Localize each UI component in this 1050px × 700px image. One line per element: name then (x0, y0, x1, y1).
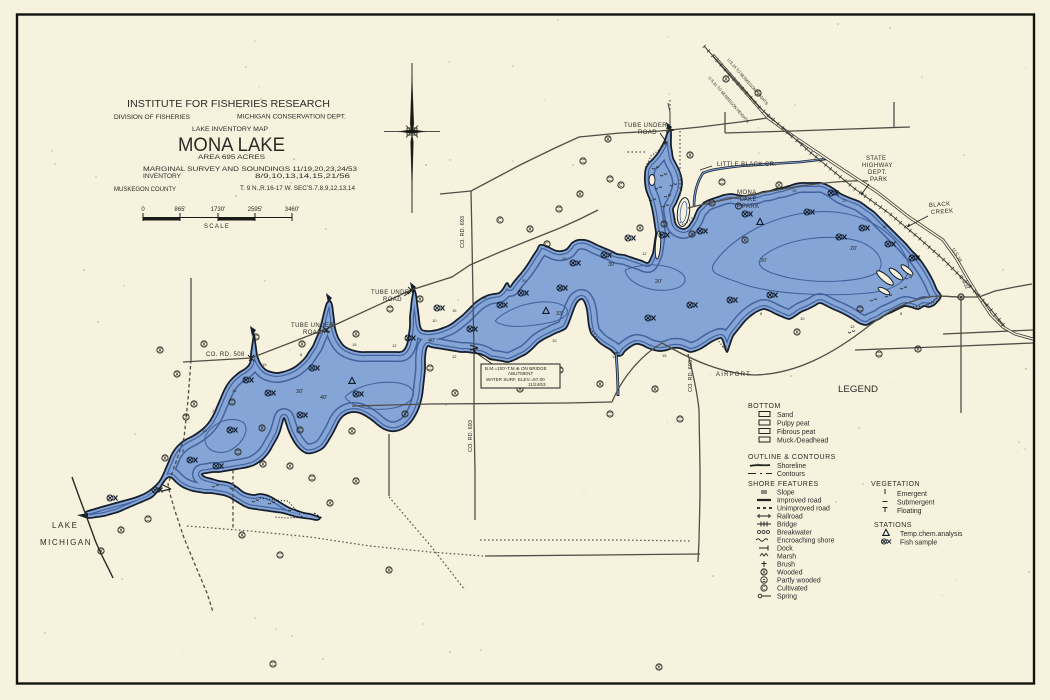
svg-text:33': 33' (556, 311, 563, 317)
svg-text:2595′: 2595′ (248, 207, 263, 213)
svg-text:Muck ∕Deadhead: Muck ∕Deadhead (777, 438, 828, 445)
svg-text:10: 10 (552, 338, 557, 343)
svg-text:AREA 695 ACRES: AREA 695 ACRES (198, 154, 266, 161)
svg-text:BOTTOM: BOTTOM (748, 403, 781, 410)
svg-text:Wooded: Wooded (777, 570, 803, 577)
svg-text:12: 12 (850, 324, 855, 329)
svg-text:HIGHWAY: HIGHWAY (862, 163, 893, 169)
svg-text:OUTLINE & CONTOURS: OUTLINE & CONTOURS (748, 454, 836, 461)
svg-text:40': 40' (320, 395, 327, 401)
svg-text:ROAD: ROAD (638, 130, 657, 136)
svg-text:CO. RD. 693: CO. RD. 693 (688, 360, 694, 392)
svg-text:12: 12 (642, 251, 647, 256)
svg-text:15: 15 (662, 353, 667, 358)
svg-text:Sand: Sand (777, 412, 793, 419)
svg-text:MICHIGAN CONSERVATION DEPT.: MICHIGAN CONSERVATION DEPT. (237, 114, 346, 121)
svg-text:Breakwater: Breakwater (777, 530, 813, 537)
svg-text:20': 20' (655, 279, 662, 285)
svg-text:Floating: Floating (897, 508, 922, 515)
svg-text:Temp.chem.analysis: Temp.chem.analysis (900, 531, 963, 538)
svg-text:LEGEND: LEGEND (838, 384, 878, 395)
svg-text:STATE: STATE (866, 156, 886, 162)
svg-text:Emergent: Emergent (897, 491, 927, 498)
svg-text:SHORE FEATURES: SHORE FEATURES (748, 481, 819, 488)
svg-text:1730′: 1730′ (211, 207, 226, 213)
svg-text:PARK: PARK (870, 177, 888, 183)
svg-text:10: 10 (202, 428, 207, 433)
svg-text:MONA LAKE: MONA LAKE (178, 135, 285, 156)
svg-text:TUBE UNDER: TUBE UNDER (291, 323, 334, 329)
svg-text:TUBE UNDER: TUBE UNDER (624, 123, 667, 129)
svg-text:VEGETATION: VEGETATION (871, 481, 920, 488)
svg-text:DIVISION OF FISHERIES: DIVISION OF FISHERIES (114, 114, 190, 121)
svg-text:10: 10 (232, 388, 237, 393)
svg-text:Shoreline: Shoreline (777, 463, 806, 470)
svg-text:STATIONS: STATIONS (874, 522, 912, 529)
svg-text:Brush: Brush (777, 562, 795, 569)
svg-text:MONA: MONA (737, 190, 757, 196)
svg-text:Spring: Spring (777, 594, 797, 601)
svg-text:LAKE: LAKE (52, 521, 78, 530)
svg-text:P: P (737, 204, 741, 210)
svg-text:MICHIGAN: MICHIGAN (40, 538, 92, 547)
svg-text:CO. RD. 693: CO. RD. 693 (460, 216, 466, 248)
svg-text:12: 12 (212, 408, 217, 413)
svg-text:11/24/53: 11/24/53 (528, 382, 546, 387)
svg-text:Improved road: Improved road (777, 498, 822, 505)
svg-text:30': 30' (608, 262, 615, 268)
svg-text:MARGINAL SURVEY AND SOUNDINGS: MARGINAL SURVEY AND SOUNDINGS 11/19,20,2… (143, 166, 358, 173)
svg-text:Unimproved road: Unimproved road (777, 506, 830, 513)
svg-text:ROAD: ROAD (383, 297, 402, 303)
svg-text:LAKE: LAKE (740, 197, 757, 203)
svg-text:10: 10 (432, 318, 437, 323)
svg-text:LITTLE BLACK CR.: LITTLE BLACK CR. (717, 162, 776, 168)
svg-text:SCALE: SCALE (204, 224, 230, 230)
svg-text:ABUTMENT: ABUTMENT (508, 371, 533, 376)
svg-text:Dock: Dock (777, 546, 793, 553)
svg-text:12: 12 (392, 343, 397, 348)
svg-text:15: 15 (262, 362, 267, 367)
svg-text:3460′: 3460′ (285, 207, 300, 213)
svg-text:INVENTORY: INVENTORY (143, 173, 181, 180)
svg-text:INSTITUTE FOR FISHERIES RES: INSTITUTE FOR FISHERIES RESEARCH (127, 99, 330, 110)
svg-text:12: 12 (612, 354, 617, 359)
svg-text:Fibrous peat: Fibrous peat (777, 429, 815, 436)
svg-text:15: 15 (882, 224, 887, 229)
svg-text:DEPT.: DEPT. (868, 170, 887, 176)
svg-text:15: 15 (452, 308, 457, 313)
svg-text:LAKE INVENTORY MAP: LAKE INVENTORY MAP (192, 126, 268, 133)
svg-text:AIRPORT: AIRPORT (716, 372, 751, 378)
svg-text:15: 15 (352, 342, 357, 347)
svg-text:ROAD: ROAD (303, 330, 322, 336)
svg-text:T. 9 N.,R.16-17 W. SEC’S.7,8,9: T. 9 N.,R.16-17 W. SEC’S.7,8,9,12,13,14 (240, 185, 356, 192)
svg-text:20': 20' (850, 246, 857, 252)
svg-text:Railroad: Railroad (777, 514, 803, 521)
svg-text:Submergent: Submergent (897, 500, 935, 507)
svg-text:10: 10 (722, 344, 727, 349)
svg-text:10: 10 (800, 316, 805, 321)
svg-text:Contours: Contours (777, 471, 806, 478)
svg-text:12: 12 (842, 198, 847, 203)
svg-text:8/9,10,13,14,15,21/56: 8/9,10,13,14,15,21/56 (255, 173, 351, 180)
svg-text:30': 30' (760, 258, 767, 264)
svg-text:30': 30' (296, 389, 303, 395)
svg-text:865′: 865′ (174, 207, 186, 213)
svg-text:Bridge: Bridge (777, 522, 797, 529)
svg-text:15: 15 (792, 188, 797, 193)
svg-text:20: 20 (562, 256, 567, 261)
svg-text:CO. RD. 508: CO. RD. 508 (206, 352, 245, 358)
svg-text:MUSKEGON COUNTY: MUSKEGON COUNTY (114, 186, 177, 193)
svg-text:CO. RD. 693: CO. RD. 693 (468, 420, 474, 452)
svg-text:Marsh: Marsh (777, 554, 796, 561)
svg-text:Cultivated: Cultivated (777, 586, 808, 593)
svg-text:18: 18 (482, 295, 487, 300)
svg-text:Pulpy peat: Pulpy peat (777, 421, 810, 428)
svg-text:Encroaching shore: Encroaching shore (777, 538, 835, 545)
svg-text:PARK: PARK (742, 204, 760, 210)
svg-text:12: 12 (452, 354, 457, 359)
svg-text:Slope: Slope (777, 490, 795, 497)
svg-text:40': 40' (428, 338, 435, 344)
svg-text:Fish sample: Fish sample (900, 540, 937, 547)
svg-text:Partly wooded: Partly wooded (777, 578, 821, 585)
svg-text:20: 20 (522, 278, 527, 283)
